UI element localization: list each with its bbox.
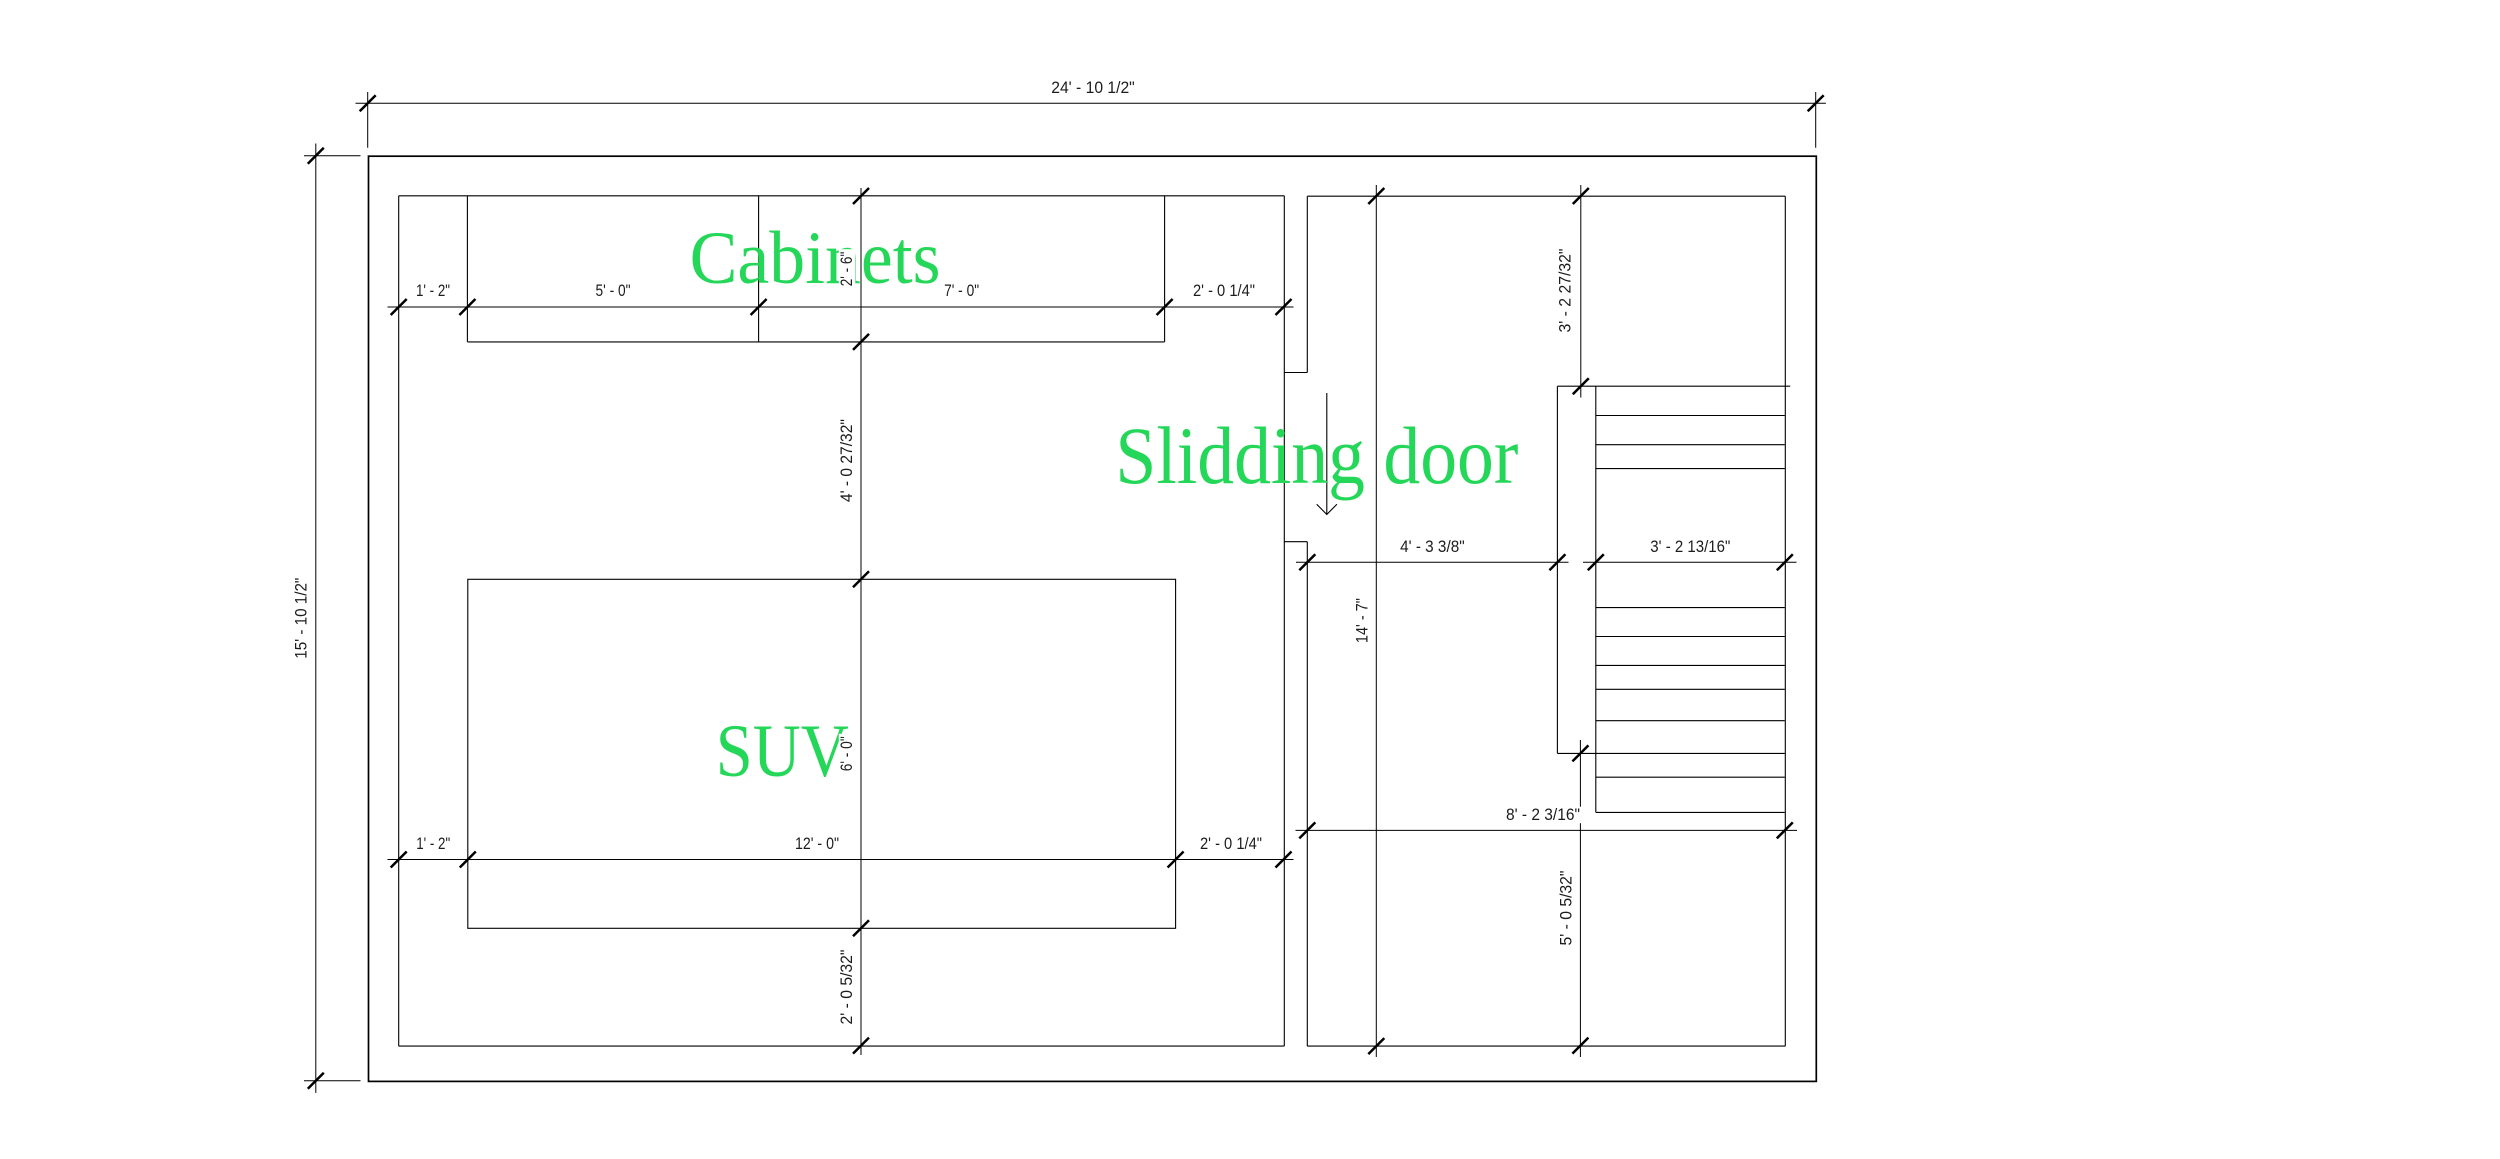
svg-text:15' - 10 1/2": 15' - 10 1/2" <box>292 578 311 659</box>
svg-text:2' - 0 1/4": 2' - 0 1/4" <box>1193 281 1255 300</box>
svg-text:1' - 2": 1' - 2" <box>416 834 450 853</box>
svg-text:5' - 0 5/32": 5' - 0 5/32" <box>1556 871 1575 946</box>
svg-text:14' - 7": 14' - 7" <box>1352 598 1371 643</box>
svg-text:2' - 0 1/4": 2' - 0 1/4" <box>1200 834 1262 853</box>
svg-text:12' - 0": 12' - 0" <box>795 834 839 853</box>
svg-text:24' - 10 1/2": 24' - 10 1/2" <box>1051 78 1135 97</box>
svg-text:SUV: SUV <box>716 710 849 793</box>
svg-text:4' - 0 27/32": 4' - 0 27/32" <box>837 419 856 502</box>
svg-text:3' - 2 27/32": 3' - 2 27/32" <box>1555 249 1574 333</box>
svg-text:6' - 0": 6' - 0" <box>837 736 856 771</box>
svg-text:8' - 2 3/16": 8' - 2 3/16" <box>1506 805 1580 824</box>
svg-text:1' - 2": 1' - 2" <box>416 281 450 300</box>
svg-text:2' - 6": 2' - 6" <box>837 252 856 287</box>
svg-text:5' - 0": 5' - 0" <box>596 281 631 300</box>
svg-text:Slidding door: Slidding door <box>1115 410 1518 501</box>
svg-text:2' - 0 5/32": 2' - 0 5/32" <box>837 950 856 1025</box>
svg-text:7' - 0": 7' - 0" <box>944 281 979 300</box>
svg-text:4' - 3 3/8": 4' - 3 3/8" <box>1400 537 1465 556</box>
svg-text:3' - 2 13/16": 3' - 2 13/16" <box>1650 537 1730 556</box>
svg-text:Cabinets: Cabinets <box>690 217 941 300</box>
